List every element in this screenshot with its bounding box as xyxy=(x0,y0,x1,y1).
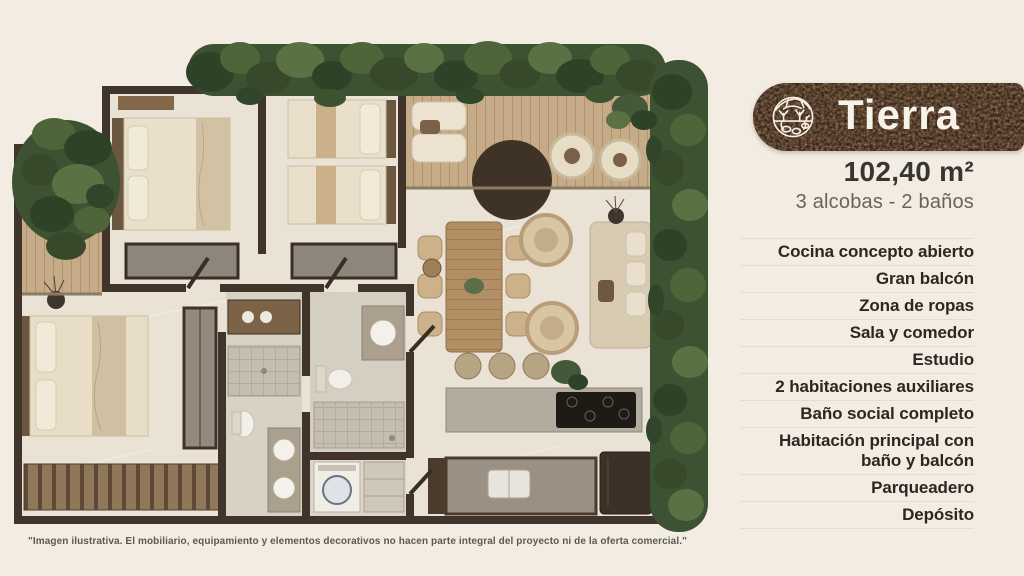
feature-item: Cocina concepto abierto xyxy=(740,239,974,266)
floor-plan-illustration xyxy=(0,0,740,576)
aux-bedroom-1 xyxy=(112,96,238,278)
unit-name: Tierra xyxy=(838,94,960,140)
feature-item: Sala y comedor xyxy=(740,320,974,347)
unit-summary: 102,40 m² 3 alcobas - 2 baños xyxy=(796,157,974,214)
feature-item: Zona de ropas xyxy=(740,293,974,320)
feature-item: Gran balcón xyxy=(740,266,974,293)
unit-rooms: 3 alcobas - 2 baños xyxy=(796,191,974,214)
unit-area: 102,40 m² xyxy=(796,157,974,188)
aux-bedroom-2 xyxy=(288,100,396,278)
page: Tierra 102,40 m² 3 alcobas - 2 baños Coc… xyxy=(0,0,1024,576)
laundry-zone xyxy=(314,462,404,512)
dining-area xyxy=(418,222,530,352)
disclaimer-text: "Imagen ilustrativa. El mobiliario, equi… xyxy=(28,536,687,547)
feature-item: Baño social completo xyxy=(740,401,974,428)
cooktop xyxy=(556,392,636,428)
feature-items: Cocina concepto abiertoGran balcónZona d… xyxy=(740,238,974,529)
feature-item: 2 habitaciones auxiliares xyxy=(740,374,974,401)
feature-item: Habitación principal con baño y balcón xyxy=(740,428,974,475)
round-table xyxy=(472,140,552,220)
feature-item: Estudio xyxy=(740,347,974,374)
soil-earth-icon xyxy=(766,90,820,144)
feature-list: Cocina concepto abiertoGran balcónZona d… xyxy=(740,238,974,529)
unit-name-badge: Tierra xyxy=(753,83,1024,151)
feature-item: Depósito xyxy=(740,502,974,529)
feature-item: Parqueadero xyxy=(740,475,974,502)
bench xyxy=(24,464,220,510)
